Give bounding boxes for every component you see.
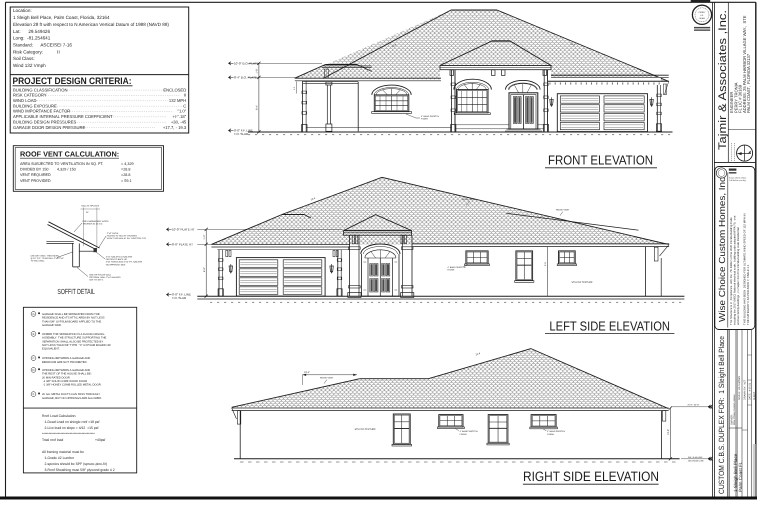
svg-text:2-species should be SPF (spruc: 2-species should be SPF (spruce-pine-fir… [45,462,108,466]
svg-text:4" BAND SMOOTH: 4" BAND SMOOTH [447,266,465,269]
svg-text:=28.8: =28.8 [121,173,131,177]
svg-text:TO CMU WALL: TO CMU WALL [31,260,46,263]
svg-text:VENT PROVIDED: VENT PROVIDED [20,179,51,183]
svg-text:OPENING BETWEEN A GARAGE AND: OPENING BETWEEN A GARAGE AND [42,369,90,372]
svg-text:TRUSSES AT 24 O.C.: TRUSSES AT 24 O.C. [83,223,104,226]
svg-text:ON OPPOSITE SIDE: ON OPPOSITE SIDE [106,263,126,266]
svg-text:24": 24" [86,211,89,214]
svg-text:THE CATEGORY II AS PER ASCE 7,: THE CATEGORY II AS PER ASCE 7, TABLE 1.1 [746,264,750,325]
svg-text:Lat: 29.549426: Lat: 29.549426 [13,29,50,34]
svg-text:Call before you dig.: Call before you dig. [729,179,747,182]
svg-text:26 GA. METAL DUCTS CAN PASS TH: 26 GA. METAL DUCTS CAN PASS THROUGH [42,393,100,396]
svg-text:8'-0": 8'-0" [203,267,206,272]
svg-text:ROOF VENT CALCULATION:: ROOF VENT CALCULATION: [20,150,119,159]
svg-text:G: G [32,313,34,316]
svg-text:C: C [183,103,186,108]
svg-text:OPTIONAL WALL 2"x4" NAILERS: OPTIONAL WALL 2"x4" NAILERS [89,276,121,279]
svg-text:Tajmir & Associates ,Inc.: Tajmir & Associates ,Inc. [717,10,729,150]
svg-text:132 MPH: 132 MPH [169,98,186,103]
svg-text:1-Grade #2 Lumber: 1-Grade #2 Lumber [45,456,75,460]
svg-text:USE 5/8" CONC. THICKNESS: USE 5/8" CONC. THICKNESS [31,255,60,258]
svg-text:20 MIN RATED DOOR: 20 MIN RATED DOOR [42,376,70,379]
svg-text:NOT LESS THAN 5/8" TYPE "X" G: NOT LESS THAN 5/8" TYPE "X" GYPSUM BOARD… [42,344,111,347]
svg-text:GARAGE SIDE.: GARAGE SIDE. [42,324,62,327]
svg-text:CUSTOM C.B.S. DUPLEX FOR: 1 S: CUSTOM C.B.S. DUPLEX FOR: 1 Sleight Bell… [717,336,726,494]
svg-text:T.O. SLAB: T.O. SLAB [172,296,186,300]
svg-text:4" BAND SMOOTH: 4" BAND SMOOTH [421,115,439,118]
svg-text:and two family dwellings , in: and two family dwellings , in chapter 34… [736,227,740,325]
svg-text:4,329 / 150: 4,329 / 150 [57,168,76,172]
svg-text:= 4,329: = 4,329 [121,162,134,166]
svg-text:FRONT ELEVATION: FRONT ELEVATION [548,153,653,168]
svg-text:GARAGE SHALL BE SEPARATED FROM: GARAGE SHALL BE SEPARATED FROM THE [42,313,100,316]
svg-text:3-Roof Sheathing must 5/8" ply: 3-Roof Sheathing must 5/8" plywood grade… [45,468,115,472]
svg-text:36169: 36169 [699,17,705,20]
svg-text:A.F.F. 10'-0": A.F.F. 10'-0" [688,404,700,407]
svg-text:ONE OR STUDS WALL: ONE OR STUDS WALL [89,274,112,277]
svg-text:SHEET: SHEET [753,391,756,400]
svg-text:AREA SUBJECTED TO VENTILATION: AREA SUBJECTED TO VENTILATION IN SQ. FT. [20,162,103,166]
svg-text:THE REST OF THE HOUSE SHALL BE: THE REST OF THE HOUSE SHALL BE: [42,373,92,376]
svg-text:@ 16" O.C. TO INSTALL 2"x6"/2": @ 16" O.C. TO INSTALL 2"x6"/2"x4" [31,257,65,260]
svg-text:D: D [33,369,35,372]
svg-text:-1 3/8" HONEY COMB ROLLED META: -1 3/8" HONEY COMB ROLLED METAL DOOR [42,384,101,387]
svg-text:VENT REQUIRED: VENT REQUIRED [20,173,51,177]
svg-text:RESIDENCE AND ITS ATTIC AREA B: RESIDENCE AND ITS ATTIC AREA BY NOT LESS [42,317,105,320]
svg-text:+17.7, - 19.3: +17.7, - 19.3 [163,125,187,130]
svg-text:SOFFIT DETAIL: SOFFIT DETAIL [57,287,95,296]
svg-text:=28.8: =28.8 [121,168,131,172]
svg-text:SCALE: AS SHOWN: SCALE: AS SHOWN [738,376,741,400]
svg-text:+43psf: +43psf [95,438,105,442]
svg-text:Wise Choice Custom Homes: Wise Choice Custom Homes [733,394,736,425]
svg-text:GARAGE, BUT NO OPENINGS ARE AL: GARAGE, BUT NO OPENINGS ARE ALLOWED. [42,397,102,400]
svg-text:1 Sleigh Bell Place, Palm Coas: 1 Sleigh Bell Place, Palm Coast, Florida… [13,15,110,20]
svg-text:8'-4": 8'-4" [256,105,259,110]
svg-text:= 59.1: = 59.1 [121,179,132,183]
svg-text:Wise Choice Custom Homes, Inc: Wise Choice Custom Homes, Inc [717,176,727,322]
svg-text:10'-0" PLATE HT: 10'-0" PLATE HT [172,228,195,232]
svg-text:Location:: Location: [13,8,32,13]
svg-text:BUILDING EXPOSURE: BUILDING EXPOSURE [13,103,57,108]
svg-text:PROJECT DESIGN CRITERIA:: PROJECT DESIGN CRITERIA: [13,75,132,86]
svg-text:ON GRADE LINE: ON GRADE LINE [688,460,704,463]
svg-text:T.O. SLAB: T.O. SLAB [234,132,248,136]
svg-text:NOT TO 48 F.T.: NOT TO 48 F.T. [89,279,104,282]
svg-text:Total roof load: Total roof load [42,438,63,442]
svg-text:THAN 5/8" GYPSUM BOARD APPLIED: THAN 5/8" GYPSUM BOARD APPLIED TO THE [42,320,101,323]
svg-text:1'-4": 1'-4" [203,235,206,240]
svg-text:FINISH: FINISH [547,433,554,436]
svg-text:FASTEN TO BACK UP: FASTEN TO BACK UP [106,258,128,261]
svg-text:RIDGE VENT: RIDGE VENT [556,209,570,212]
svg-text:WITH 2 16D NAIL AT EA. JUNCTIO: WITH 2 16D NAIL AT EA. JUNCTION TYP. [107,237,147,240]
svg-text:Wind 132 Vmph: Wind 132 Vmph [13,63,46,68]
svg-text:RIDGE VENT: RIDGE VENT [320,377,334,380]
svg-text:II: II [184,93,186,98]
svg-text:RIDGE VENT: RIDGE VENT [462,198,476,201]
svg-text:FASTEN TO TAIL OF TRUSSES: FASTEN TO TAIL OF TRUSSES [107,235,138,238]
svg-text:STUCCO TEXTURE: STUCCO TEXTURE [572,281,593,284]
svg-text:23'-4": 23'-4" [304,371,310,374]
svg-text:OPENING BETWEEN A GARAGE AND: OPENING BETWEEN A GARAGE AND [42,357,90,360]
svg-text:LEFT SIDE ELEVATION: LEFT SIDE ELEVATION [549,319,670,334]
svg-text:4" BAND SMOOTH: 4" BAND SMOOTH [547,430,565,433]
svg-text:FIN. SLAB LINE: FIN. SLAB LINE [688,456,703,459]
svg-text:+30, -45: +30, -45 [171,119,187,124]
svg-text:-1 3/8" SOLID CORE WOOD DOOR: -1 3/8" SOLID CORE WOOD DOOR [42,380,87,383]
svg-text:2"x6" FACIA: 2"x6" FACIA [107,232,119,235]
svg-text:WIND IMPORTANCE FACTOR: WIND IMPORTANCE FACTOR [13,109,70,114]
svg-text:Risk Category: II: Risk Category: II [13,49,60,54]
svg-text:+/-".18": +/-".18" [173,114,187,119]
svg-text:Palm Coast FL: Palm Coast FL [738,461,743,492]
svg-text:STUCCO TEXTURE: STUCCO TEXTURE [355,428,376,431]
svg-text:BUILDING CLASSIFICATION: BUILDING CLASSIFICATION [13,87,67,92]
svg-text:FINISH: FINISH [460,433,467,436]
svg-text:Roof Load Calculation:: Roof Load Calculation: [42,414,76,418]
svg-text:P.E.: P.E. [700,14,704,17]
svg-text:8'-0" PLATE HT: 8'-0" PLATE HT [172,242,193,246]
svg-text:BUILDING DESIGN PRESSURES: BUILDING DESIGN PRESSURES [13,119,77,124]
svg-text:2"x6" FASCIA AND 2"x6" P.T. NA: 2"x6" FASCIA AND 2"x6" P.T. NAILERS [106,261,143,264]
svg-text:APPLICABLE INTERNAL PRESSURE C: APPLICABLE INTERNAL PRESSURE COEFFICIENT [13,114,113,119]
svg-text:PALM COAST, FLORIDA 32137: PALM COAST, FLORIDA 32137 [746,53,751,113]
svg-text:NAIL 24" SPLICES: NAIL 24" SPLICES [82,205,100,208]
svg-text:C: C [33,357,35,360]
svg-text:EQUIVALENT.: EQUIVALENT. [42,348,60,351]
svg-text:DATE: 4-15-21: DATE: 4-15-21 [749,382,752,400]
svg-text:ENCLOSED: ENCLOSED [163,87,186,92]
svg-text:10'-0": 10'-0" [667,429,670,435]
svg-text:1'-8": 1'-8" [256,69,259,74]
svg-text:WIND LOAD: WIND LOAD [13,98,36,103]
svg-text:DIVIDED BY 150: DIVIDED BY 150 [20,168,49,172]
svg-text:"1.0": "1.0" [177,109,186,114]
svg-text:2-Live load on slope > 4/12 =: 2-Live load on slope > 4/12 =15 psf [45,426,99,430]
svg-text:Soil Class:: Soil Class: [13,56,35,61]
svg-text:1-Dead Load on shingle roof =1: 1-Dead Load on shingle roof =18 psf [45,420,100,424]
svg-text:RIGHT SIDE ELEVATION: RIGHT SIDE ELEVATION [523,469,659,484]
svg-text:E: E [33,333,35,336]
svg-text:FINISH: FINISH [447,269,454,272]
svg-text:******************************: **************************************** [42,432,95,436]
svg-text:PERRY: PERRY [699,11,707,14]
svg-text:2"x4" NAILER 4x4 NAILERS: 2"x4" NAILER 4x4 NAILERS [106,256,133,259]
svg-text:PRE ENGINEERED WOOD: PRE ENGINEERED WOOD [83,220,109,223]
svg-text:SEPARATION SHALL ALSO BE PROTE: SEPARATION SHALL ALSO BE PROTECTED BY [42,340,103,343]
svg-text:Standard: ASCE/SEI 7-16: Standard: ASCE/SEI 7-16 [13,42,72,47]
svg-text:RISK CATEGORY: RISK CATEGORY [13,93,47,98]
svg-text:All framing material must be: All framing material must be [42,450,84,454]
svg-text:GARAGE DOOR DESIGN PRESSURE: GARAGE DOOR DESIGN PRESSURE [13,125,85,130]
svg-text:4" BAND SMOOTH: 4" BAND SMOOTH [460,430,478,433]
svg-text:ASSEMBLY THE STRUCTURE SUPPOR: ASSEMBLY THE STRUCTURE SUPPORTING THE [42,337,107,340]
svg-text:Elevation 28 ft with respect t: Elevation 28 ft with respect to N Americ… [13,22,169,27]
svg-text:Long: -81.254641: Long: -81.254641 [13,36,51,41]
svg-text:FINISH: FINISH [421,118,428,121]
svg-text:WHERE THE SEPARATION IS A FLOO: WHERE THE SEPARATION IS A FLOOR-CEILING [42,333,104,336]
svg-text:BEDROOM ARE NOT PROHIBITED.: BEDROOM ARE NOT PROHIBITED. [42,361,88,364]
svg-text:DRAWN BY: MJT: DRAWN BY: MJT [744,379,747,400]
